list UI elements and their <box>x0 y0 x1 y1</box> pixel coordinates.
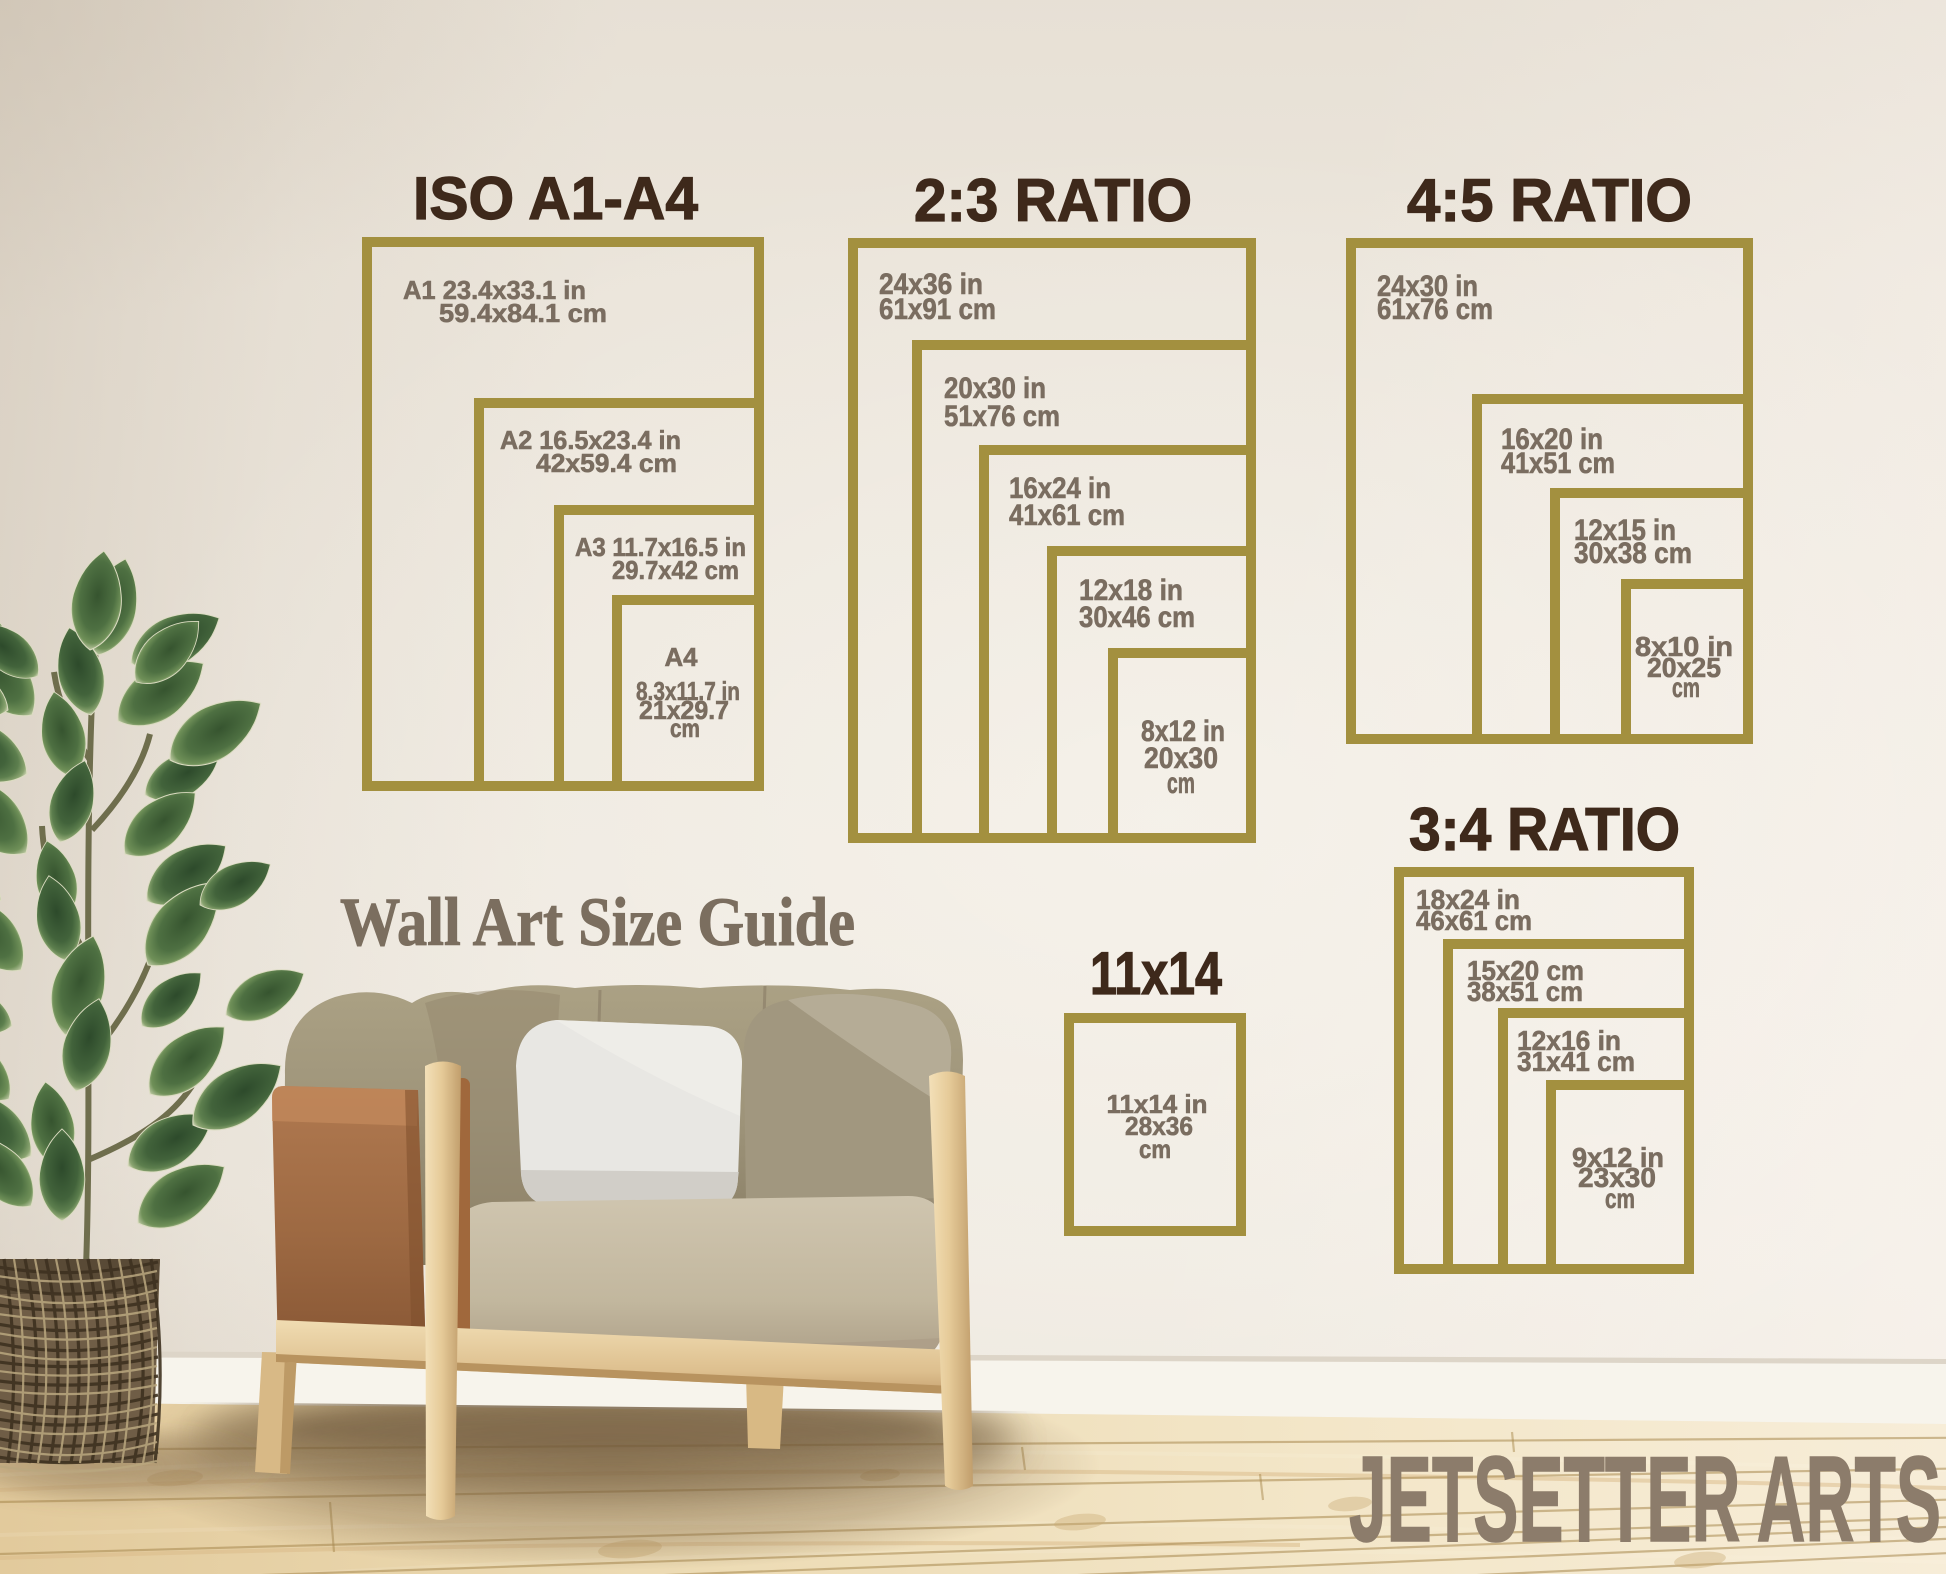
svg-text:51x76 cm: 51x76 cm <box>944 400 1060 433</box>
svg-text:3:4 RATIO: 3:4 RATIO <box>1409 796 1680 863</box>
svg-text:4:5 RATIO: 4:5 RATIO <box>1407 167 1692 234</box>
svg-text:42x59.4 cm: 42x59.4 cm <box>536 448 677 478</box>
svg-text:61x76 cm: 61x76 cm <box>1377 293 1493 326</box>
svg-text:A4: A4 <box>665 642 699 672</box>
svg-text:41x51 cm: 41x51 cm <box>1501 447 1615 480</box>
svg-text:cm: cm <box>670 713 700 743</box>
svg-text:2:3 RATIO: 2:3 RATIO <box>914 167 1192 234</box>
svg-text:61x91 cm: 61x91 cm <box>879 293 996 326</box>
svg-text:cm: cm <box>1672 672 1700 703</box>
svg-text:JETSETTER ARTS: JETSETTER ARTS <box>1349 1431 1941 1567</box>
svg-text:cm: cm <box>1605 1183 1635 1214</box>
svg-text:30x38 cm: 30x38 cm <box>1574 537 1692 570</box>
svg-text:Wall Art Size Guide: Wall Art Size Guide <box>340 884 855 960</box>
svg-text:38x51 cm: 38x51 cm <box>1467 976 1583 1007</box>
svg-text:30x46 cm: 30x46 cm <box>1079 601 1195 634</box>
svg-text:cm: cm <box>1139 1134 1171 1164</box>
svg-text:59.4x84.1 cm: 59.4x84.1 cm <box>439 298 607 328</box>
svg-text:31x41 cm: 31x41 cm <box>1517 1046 1635 1077</box>
svg-text:29.7x42 cm: 29.7x42 cm <box>612 555 739 585</box>
svg-text:11x14: 11x14 <box>1090 940 1222 1007</box>
svg-text:46x61 cm: 46x61 cm <box>1416 905 1532 936</box>
svg-text:ISO A1-A4: ISO A1-A4 <box>413 165 699 232</box>
svg-text:41x61 cm: 41x61 cm <box>1009 499 1125 532</box>
svg-text:cm: cm <box>1167 767 1195 800</box>
